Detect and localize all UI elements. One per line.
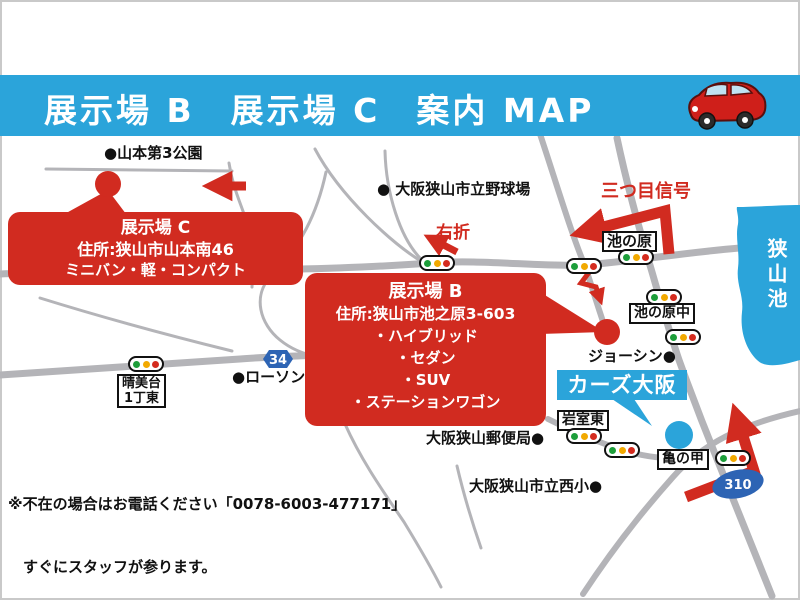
intersection-kamenoko: 亀の甲	[657, 449, 709, 470]
shop-pointer	[612, 399, 652, 426]
site-b-title: 展示場 B	[305, 280, 546, 304]
lake-name: 狭山池	[762, 238, 791, 313]
note-line: ※不在の場合はお電話ください「0078-6003-477171」	[8, 494, 406, 515]
poi-park: ●山本第3公園	[104, 142, 203, 163]
traffic-light-icon	[665, 329, 701, 345]
svg-text:310: 310	[724, 478, 751, 493]
site-b-dot	[594, 319, 620, 345]
third-signal-label: 三つ目信号	[601, 177, 691, 203]
traffic-light-icon	[566, 428, 602, 444]
site-b-item: ・SUV	[305, 369, 546, 391]
callout-site-c: 展示場 C 住所:狭山市山本南46 ミニバン・軽・コンパクト	[8, 212, 303, 285]
map-flyer: 34 310 展示場 B 展示場 C 案内 MAP 展示場 C 住所:狭山市山本…	[0, 0, 800, 600]
poi-baseball-stadium: ● 大阪狭山市立野球場	[377, 178, 530, 199]
site-c-title: 展示場 C	[8, 217, 303, 239]
site-c-dot	[95, 171, 121, 197]
traffic-light-icon	[715, 450, 751, 466]
callout-site-b: 展示場 B 住所:狭山市池之原3-603 ・ハイブリッド ・セダン ・SUV ・…	[305, 273, 546, 426]
traffic-light-icon	[128, 356, 164, 372]
car-icon	[677, 75, 772, 136]
poi-lawson: ●ローソン	[232, 366, 305, 387]
header-bar: 展示場 B 展示場 C 案内 MAP	[0, 75, 800, 136]
site-b-item: ・セダン	[305, 347, 546, 369]
poi-elementary-school: 大阪狭山市立西小●	[469, 475, 602, 496]
traffic-light-icon	[566, 258, 602, 274]
site-b-item: ・ステーションワゴン	[305, 391, 546, 413]
traffic-light-icon	[618, 249, 654, 265]
intersection-harumidai-line1: 晴美台	[122, 376, 161, 391]
shop-dot	[665, 421, 693, 449]
shop-name-box: カーズ大阪	[557, 370, 687, 400]
site-b-item: ・ハイブリッド	[305, 325, 546, 347]
intersection-ikenohara-naka: 池の原中	[629, 303, 695, 324]
footer-notes: ※不在の場合はお電話ください「0078-6003-477171」 すぐにスタッフ…	[8, 452, 406, 600]
intersection-harumidai: 晴美台 1丁東	[117, 374, 166, 408]
poi-joshin: ジョーシン●	[588, 345, 676, 366]
site-b-address: 住所:狭山市池之原3-603	[305, 304, 546, 325]
site-c-vehicles: ミニバン・軽・コンパクト	[8, 260, 303, 280]
traffic-light-icon	[604, 442, 640, 458]
right-turn-label: 右折	[436, 218, 470, 243]
traffic-light-icon	[646, 289, 682, 305]
note-line: すぐにスタッフが参ります。	[8, 557, 406, 578]
site-c-address: 住所:狭山市山本南46	[8, 239, 303, 260]
page-title: 展示場 B 展示場 C 案内 MAP	[44, 84, 594, 132]
traffic-light-icon	[419, 255, 455, 271]
poi-post-office: 大阪狭山郵便局●	[426, 427, 544, 448]
intersection-harumidai-line2: 1丁東	[122, 391, 161, 406]
